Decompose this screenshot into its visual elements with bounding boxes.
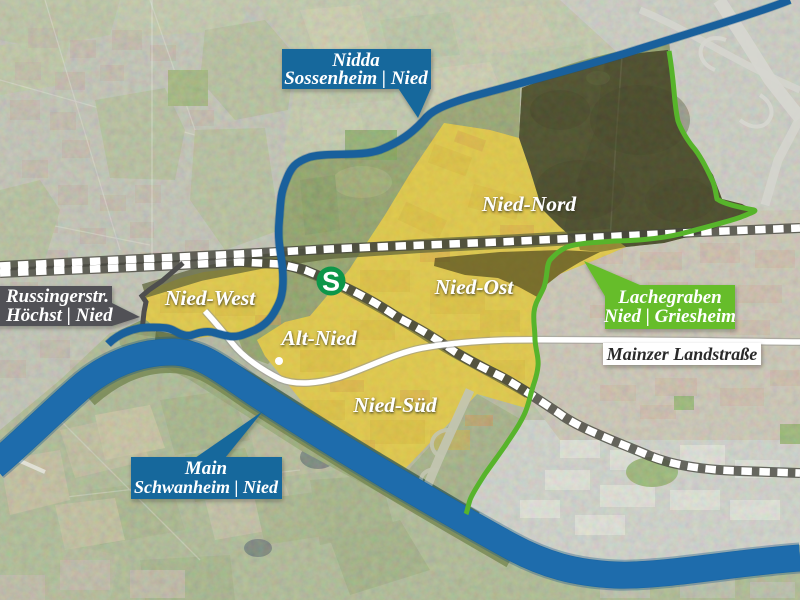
- svg-text:Nied-Ost: Nied-Ost: [434, 275, 515, 299]
- svg-text:S: S: [322, 267, 340, 297]
- svg-text:Nied-Süd: Nied-Süd: [352, 393, 438, 417]
- svg-text:Nied | Griesheim: Nied | Griesheim: [603, 306, 736, 327]
- svg-text:Nied-Nord: Nied-Nord: [481, 192, 578, 216]
- svg-text:Höchst | Nied: Höchst | Nied: [5, 305, 113, 326]
- svg-text:Mainzer Landstraße: Mainzer Landstraße: [606, 344, 758, 364]
- svg-text:Alt-Nied: Alt-Nied: [279, 326, 357, 350]
- svg-text:Main: Main: [184, 458, 227, 479]
- svg-text:Schwanheim | Nied: Schwanheim | Nied: [134, 477, 279, 497]
- svg-text:Lachegraben: Lachegraben: [617, 287, 721, 308]
- svg-text:Russingerstr.: Russingerstr.: [5, 286, 109, 307]
- svg-text:Nied-West: Nied-West: [164, 286, 256, 310]
- svg-text:Sossenheim | Nied: Sossenheim | Nied: [284, 68, 428, 89]
